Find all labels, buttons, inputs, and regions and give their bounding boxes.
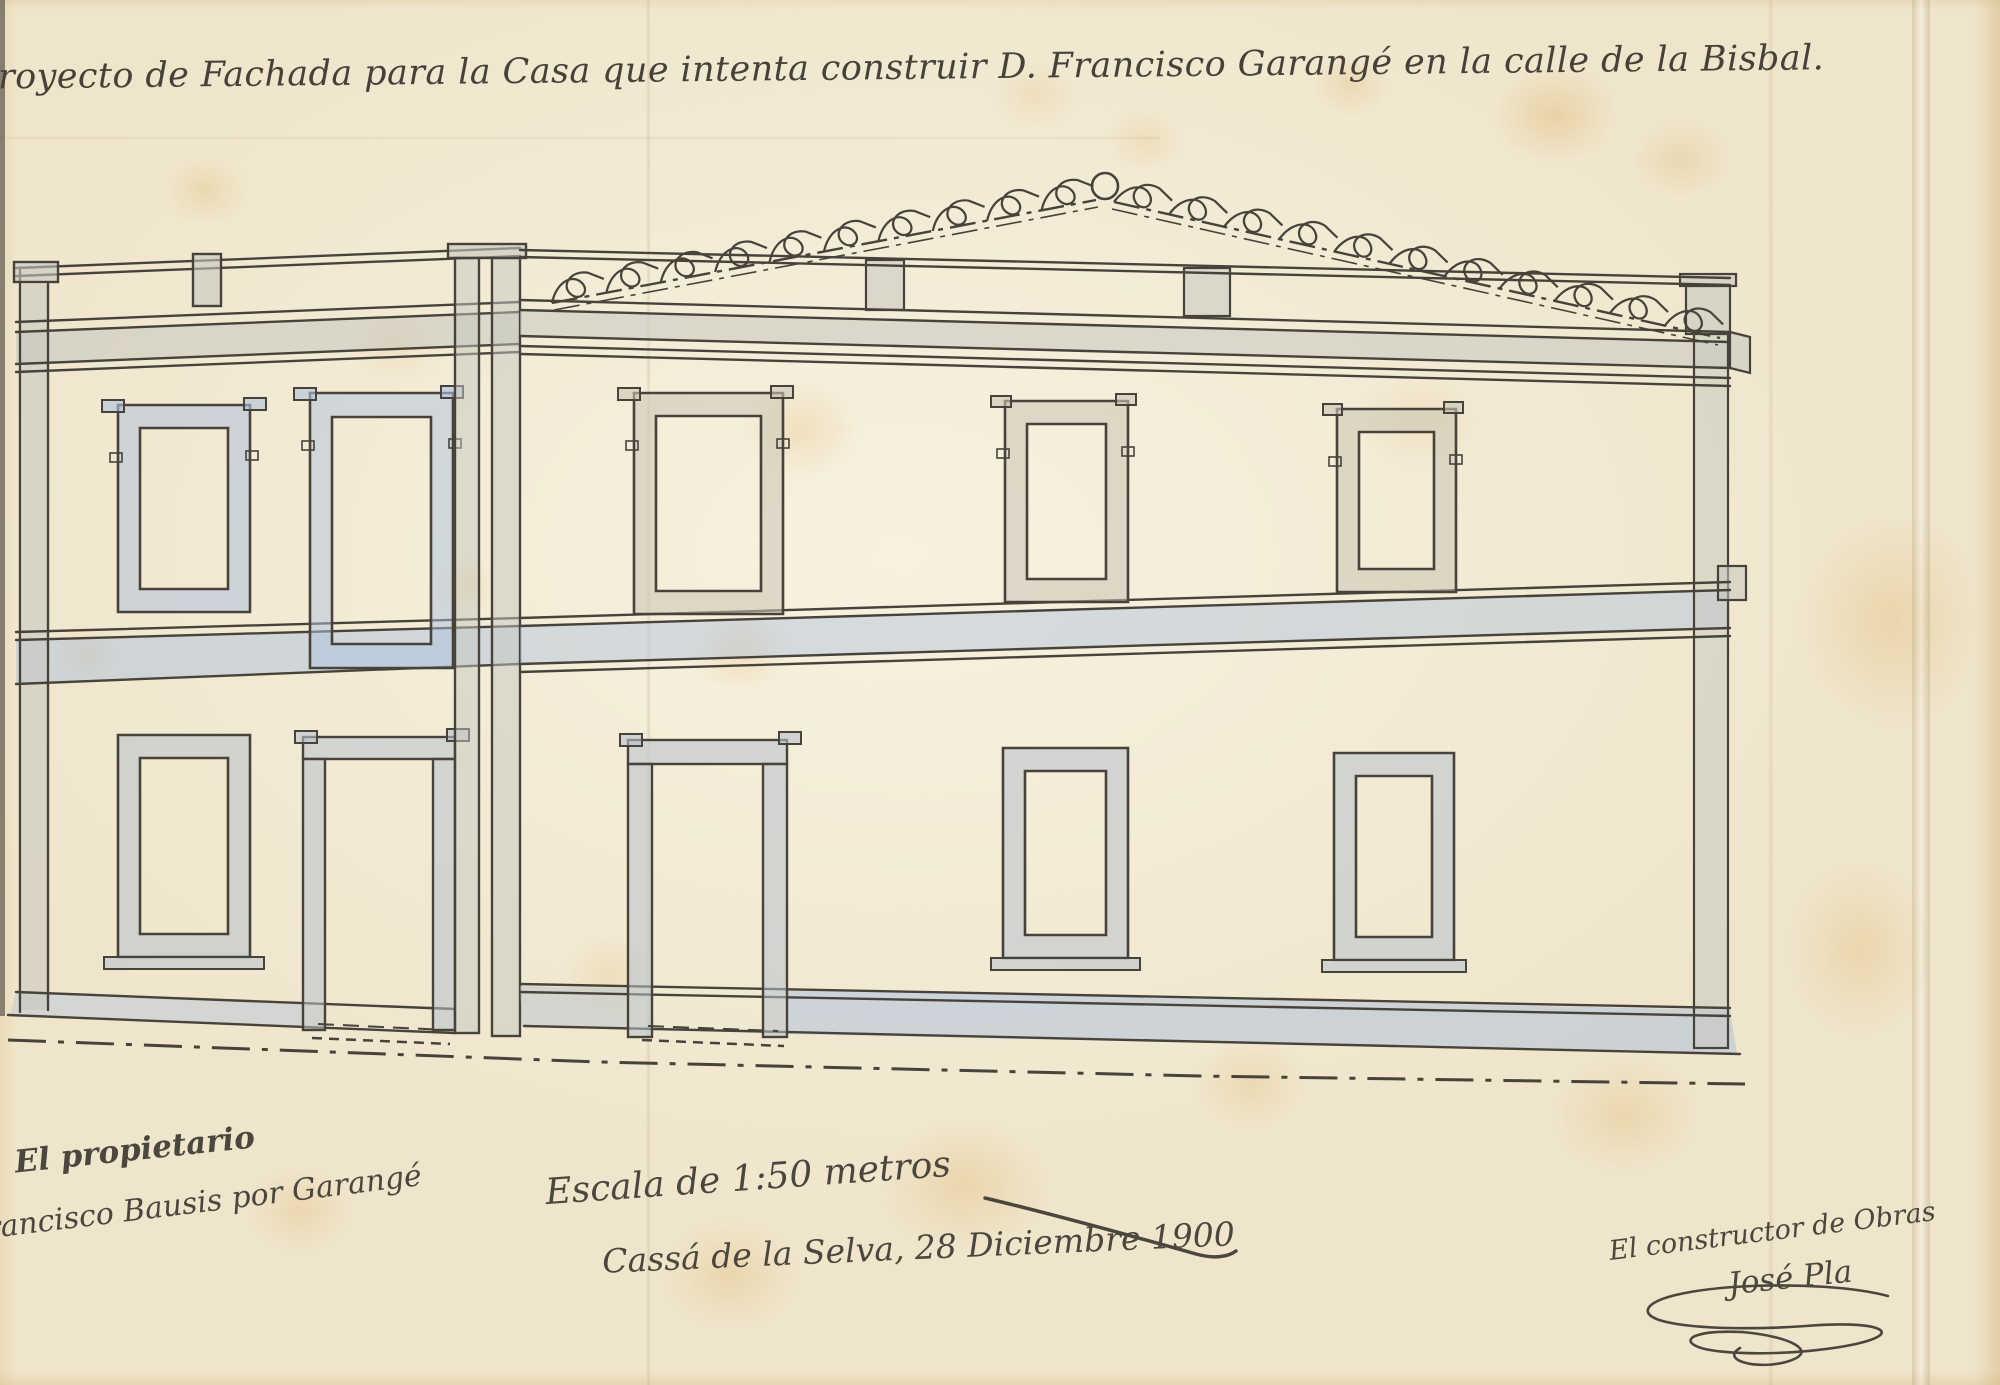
crest-apex-loop: [1092, 173, 1118, 199]
window-upper-left-1: [102, 398, 266, 612]
window-lower-main-2: [1322, 753, 1466, 972]
left-facade: [8, 248, 520, 1044]
scanned-drawing-sheet: Proyecto de Fachada para la Casa que int…: [0, 0, 2000, 1385]
balcony-door-upper-left: [294, 386, 463, 668]
crest-volutes: [547, 176, 1725, 338]
window-lower-main-1: [991, 748, 1140, 970]
door-lower-main: [620, 732, 801, 1046]
balcony-door-upper-main: [618, 386, 793, 614]
main-facade: [520, 250, 1750, 1054]
signature-rubric-loop: [1734, 1332, 1801, 1365]
window-upper-main-1: [991, 394, 1136, 602]
door-lower-left: [295, 729, 469, 1044]
window-lower-left: [104, 735, 264, 969]
window-upper-main-2: [1323, 402, 1463, 592]
